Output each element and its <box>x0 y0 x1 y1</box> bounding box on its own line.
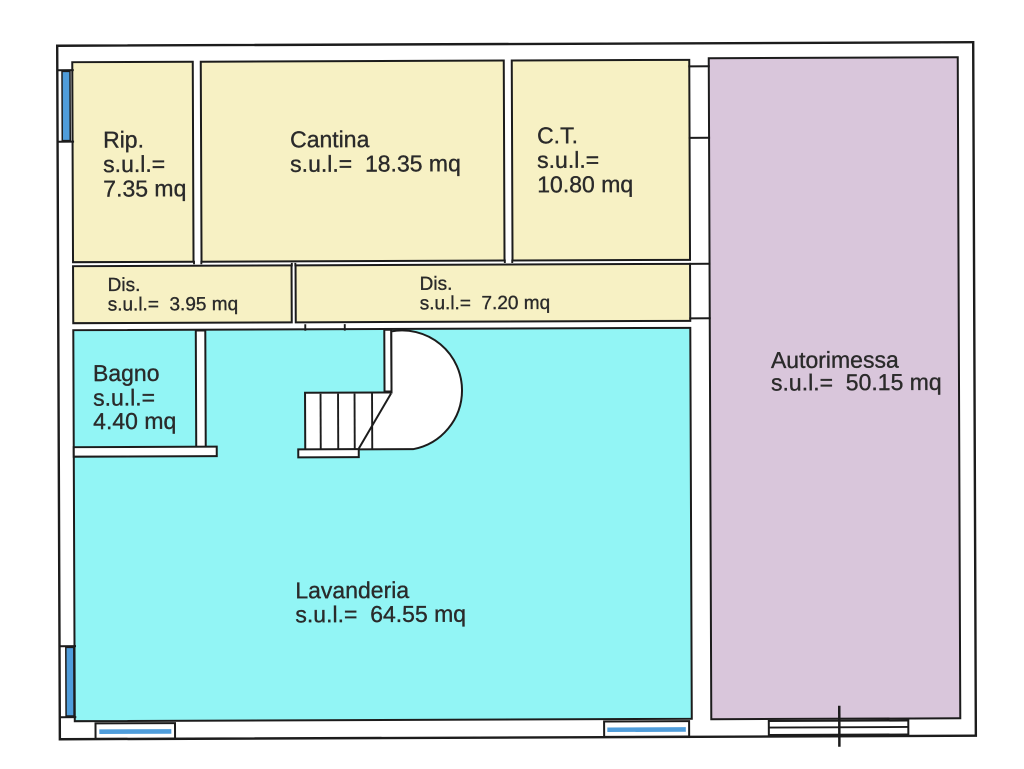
svg-text:Rip.: Rip. <box>103 126 144 152</box>
svg-text:10.80 mq: 10.80 mq <box>537 171 633 197</box>
svg-text:s.u.l.= 3.95 mq: s.u.l.= 3.95 mq <box>108 294 239 316</box>
svg-text:C.T.: C.T. <box>537 122 578 148</box>
svg-text:Dis.: Dis. <box>108 275 141 296</box>
svg-text:Lavanderia: Lavanderia <box>295 577 409 603</box>
svg-text:s.u.l.= 50.15 mq: s.u.l.= 50.15 mq <box>771 369 942 396</box>
svg-text:s.u.l.=: s.u.l.= <box>103 151 165 177</box>
svg-text:7.35 mq: 7.35 mq <box>103 175 186 201</box>
svg-text:s.u.l.= 64.55 mq: s.u.l.= 64.55 mq <box>295 601 466 628</box>
svg-text:s.u.l.=: s.u.l.= <box>537 147 599 173</box>
svg-text:s.u.l.=: s.u.l.= <box>93 384 155 410</box>
svg-text:s.u.l.= 18.35 mq: s.u.l.= 18.35 mq <box>290 150 461 177</box>
svg-text:Bagno: Bagno <box>93 360 160 386</box>
svg-text:Dis.: Dis. <box>420 274 453 295</box>
svg-text:4.40 mq: 4.40 mq <box>93 408 176 434</box>
svg-text:s.u.l.= 7.20 mq: s.u.l.= 7.20 mq <box>420 293 551 315</box>
svg-text:Cantina: Cantina <box>290 126 370 152</box>
